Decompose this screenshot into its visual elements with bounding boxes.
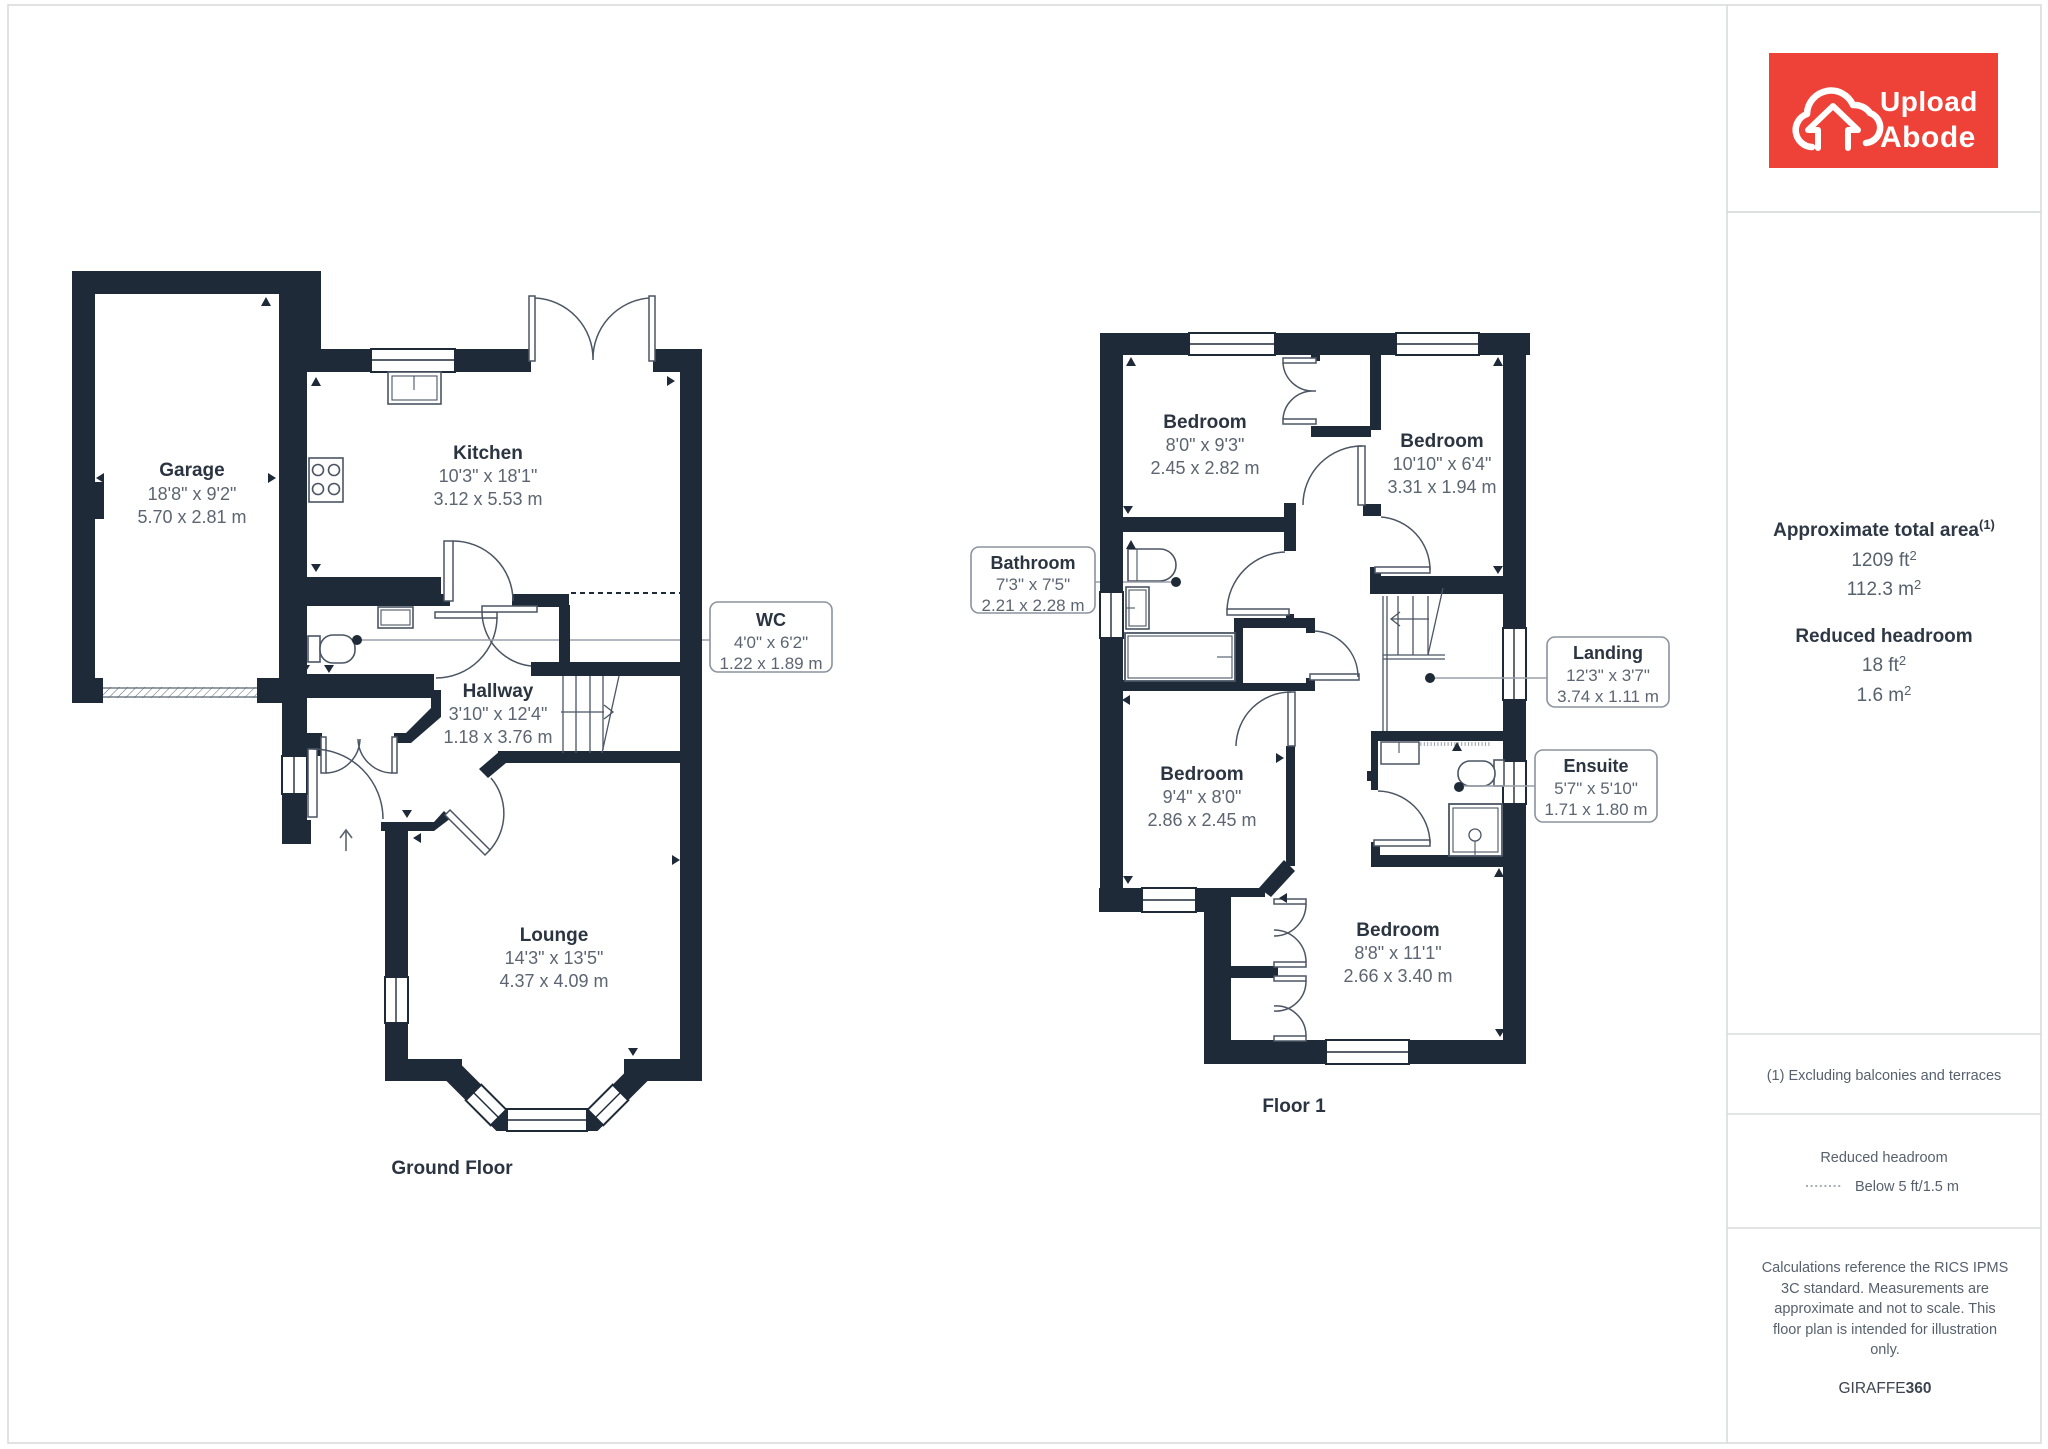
svg-text:approximate and not to scale.: approximate and not to scale. This xyxy=(1774,1301,1995,1317)
svg-text:5'7" x 5'10": 5'7" x 5'10" xyxy=(1554,779,1638,798)
svg-text:9'4" x 8'0": 9'4" x 8'0" xyxy=(1163,787,1242,807)
svg-text:Below 5 ft/1.5 m: Below 5 ft/1.5 m xyxy=(1855,1179,1959,1195)
svg-text:10'10" x 6'4": 10'10" x 6'4" xyxy=(1393,454,1492,474)
svg-text:5.70 x 2.81 m: 5.70 x 2.81 m xyxy=(137,507,246,527)
svg-text:2.21 x 2.28 m: 2.21 x 2.28 m xyxy=(981,596,1084,615)
svg-text:Hallway: Hallway xyxy=(463,681,534,702)
svg-text:1.71 x 1.80 m: 1.71 x 1.80 m xyxy=(1544,800,1647,819)
svg-text:Bedroom: Bedroom xyxy=(1160,764,1243,785)
svg-text:Abode: Abode xyxy=(1880,121,1976,154)
svg-text:2.45 x 2.82 m: 2.45 x 2.82 m xyxy=(1150,458,1259,478)
svg-text:1.22 x 1.89 m: 1.22 x 1.89 m xyxy=(719,654,822,673)
svg-text:WC: WC xyxy=(756,610,786,630)
svg-text:GIRAFFE360: GIRAFFE360 xyxy=(1838,1380,1931,1397)
svg-text:112.3 m2: 112.3 m2 xyxy=(1847,577,1921,600)
svg-text:3.74 x 1.11 m: 3.74 x 1.11 m xyxy=(1557,687,1659,706)
svg-text:4'0" x 6'2": 4'0" x 6'2" xyxy=(734,633,808,652)
svg-text:7'3" x 7'5": 7'3" x 7'5" xyxy=(996,575,1070,594)
svg-text:Bathroom: Bathroom xyxy=(991,553,1076,573)
svg-text:8'0" x 9'3": 8'0" x 9'3" xyxy=(1166,435,1245,455)
svg-text:2.86 x 2.45 m: 2.86 x 2.45 m xyxy=(1147,810,1256,830)
svg-text:Reduced headroom: Reduced headroom xyxy=(1795,626,1972,647)
svg-text:4.37 x 4.09 m: 4.37 x 4.09 m xyxy=(499,971,608,991)
svg-text:Lounge: Lounge xyxy=(520,925,589,946)
svg-text:Garage: Garage xyxy=(159,460,224,481)
svg-text:3C standard. Measurements are: 3C standard. Measurements are xyxy=(1781,1281,1989,1297)
svg-text:1.6 m2: 1.6 m2 xyxy=(1857,683,1912,706)
svg-text:Bedroom: Bedroom xyxy=(1400,431,1483,452)
svg-text:Calculations reference the RIC: Calculations reference the RICS IPMS xyxy=(1762,1260,2009,1276)
svg-text:Kitchen: Kitchen xyxy=(453,443,523,464)
svg-text:3.12 x 5.53 m: 3.12 x 5.53 m xyxy=(433,489,542,509)
svg-text:(1) Excluding balconies and te: (1) Excluding balconies and terraces xyxy=(1767,1068,2002,1084)
svg-text:1.18 x 3.76 m: 1.18 x 3.76 m xyxy=(443,727,552,747)
svg-text:10'3" x 18'1": 10'3" x 18'1" xyxy=(439,466,538,486)
svg-text:Ensuite: Ensuite xyxy=(1563,756,1628,776)
svg-text:18'8" x 9'2": 18'8" x 9'2" xyxy=(148,484,237,504)
svg-text:floor plan is intended for ill: floor plan is intended for illustration xyxy=(1773,1322,1997,1338)
svg-text:Bedroom: Bedroom xyxy=(1356,920,1439,941)
svg-text:only.: only. xyxy=(1870,1342,1900,1358)
svg-text:Ground Floor: Ground Floor xyxy=(391,1158,513,1179)
svg-text:Floor 1: Floor 1 xyxy=(1262,1096,1326,1117)
svg-text:1209 ft2: 1209 ft2 xyxy=(1851,548,1916,571)
svg-text:2.66 x 3.40 m: 2.66 x 3.40 m xyxy=(1343,966,1452,986)
svg-text:3.31 x 1.94 m: 3.31 x 1.94 m xyxy=(1387,477,1496,497)
svg-text:Upload: Upload xyxy=(1880,86,1978,117)
svg-text:Landing: Landing xyxy=(1573,643,1643,663)
svg-text:14'3" x 13'5": 14'3" x 13'5" xyxy=(505,948,604,968)
svg-text:3'10" x 12'4": 3'10" x 12'4" xyxy=(449,704,548,724)
svg-text:12'3" x 3'7": 12'3" x 3'7" xyxy=(1566,666,1650,685)
svg-text:Bedroom: Bedroom xyxy=(1163,412,1246,433)
svg-text:8'8" x 11'1": 8'8" x 11'1" xyxy=(1354,943,1441,963)
svg-text:Approximate total area(1): Approximate total area(1) xyxy=(1773,517,1995,541)
svg-text:Reduced headroom: Reduced headroom xyxy=(1820,1150,1947,1166)
